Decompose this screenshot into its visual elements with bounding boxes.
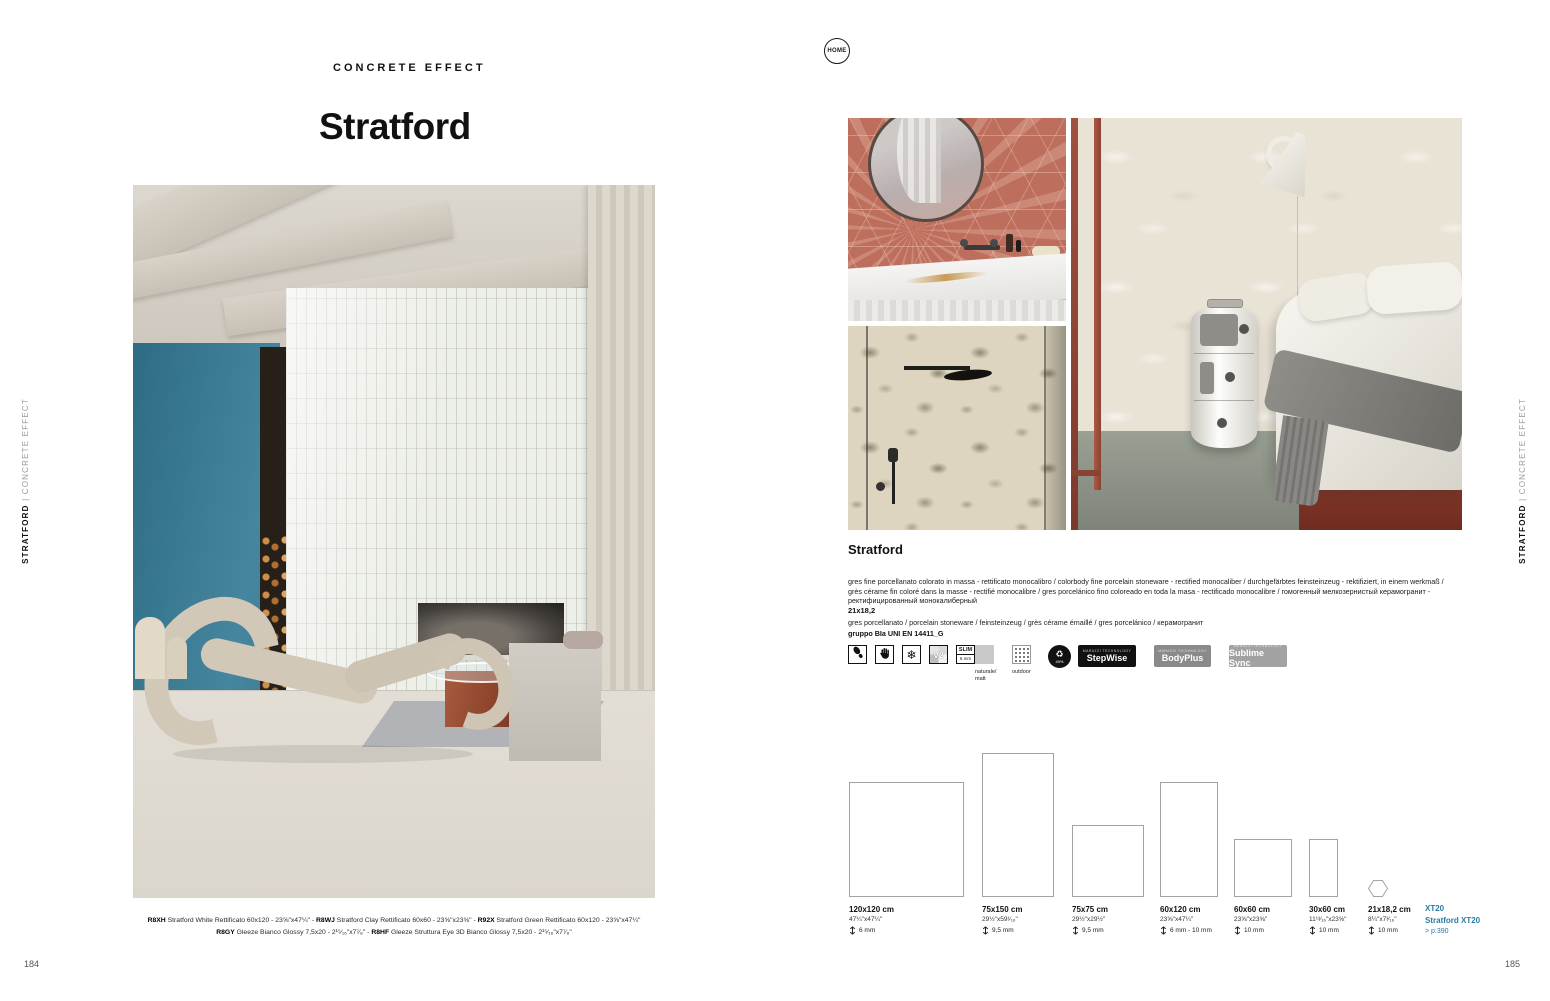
living-room-photo [133, 185, 655, 898]
size-shape-rect [1160, 782, 1218, 897]
home-button-label: HOME [827, 48, 846, 54]
thickness-icon [1072, 926, 1079, 935]
sidebar-effect: CONCRETE EFFECT [21, 398, 30, 494]
badge-subtitle: MARAZZI TECHNOLOGY [1234, 644, 1283, 648]
size-label: 75x150 cm [982, 905, 1022, 914]
product-size-note: 21x18,2 [848, 606, 875, 615]
size-shape-area [1368, 750, 1498, 897]
footprint-icon [852, 646, 864, 664]
product-code: R8HF [371, 929, 389, 936]
page-title: Stratford [319, 106, 471, 148]
bathroom-photo [848, 118, 1066, 321]
nightstand-handle [1207, 299, 1243, 308]
v2-label: V2 [933, 650, 943, 660]
size-shape-rect [1309, 839, 1338, 897]
slim-label: SLIM [957, 647, 974, 655]
left-sidebar-label: STRATFORD | CONCRETE EFFECT [21, 398, 30, 564]
stepwise-label: StepWise [1087, 653, 1127, 663]
sublime-sync-label: Sublime Sync [1229, 648, 1287, 668]
red-frame [1071, 118, 1078, 530]
glass-edge [866, 326, 868, 530]
bottle [1006, 234, 1013, 252]
cushion [563, 631, 603, 649]
sidebar-collection: STRATFORD [1518, 504, 1527, 564]
size-inches: 11¹³⁄₁₆"x23⅝" [1309, 916, 1347, 923]
shower-head [944, 368, 993, 382]
bodyplus-label: BodyPlus [1162, 653, 1204, 663]
product-code: R8GY [216, 929, 235, 936]
thickness-icon [1368, 926, 1375, 935]
faucet-knob [960, 239, 968, 247]
size-shape-rect [849, 782, 964, 897]
product-code: R92X [478, 917, 495, 924]
size-column: 120x120 cm47¼"x47¼"6 mm [849, 750, 979, 950]
nightstand-knob [1225, 372, 1235, 382]
size-shape-rect [1072, 825, 1144, 897]
size-label: 120x120 cm [849, 905, 894, 914]
sidebar-collection: STRATFORD [21, 504, 30, 564]
product-code: R8WJ [316, 917, 335, 924]
size-label: 30x60 cm [1309, 905, 1345, 914]
mirror-reflection [897, 118, 941, 203]
size-inches: 8¼"x7³⁄₁₆" [1368, 916, 1397, 923]
size-thickness: 9,5 mm [1072, 926, 1104, 935]
bodyplus-badge: MARAZZI TECHNOLOGY BodyPlus [1154, 645, 1211, 667]
size-inches: 29½"x29½" [1072, 916, 1105, 923]
thickness-icon [1160, 926, 1167, 935]
sublime-sync-badge: MARAZZI TECHNOLOGY Sublime Sync [1229, 645, 1287, 667]
shade-variation-pictogram: V2 [929, 645, 948, 664]
nightstand-knob [1239, 324, 1249, 334]
basin-front [848, 300, 1066, 321]
sidebar-divider: | [1518, 494, 1527, 504]
nightstand-door [1200, 362, 1214, 394]
slim-pictogram: SLIM 6 mm [956, 645, 975, 664]
floor-use-pictogram [848, 645, 867, 664]
matt-finish-swatch [975, 645, 994, 664]
thickness-icon [982, 926, 989, 935]
hand-shower-rod [892, 456, 895, 504]
collection-eyebrow: CONCRETE EFFECT [333, 62, 486, 74]
product-description: gres fine porcellanato colorato in massa… [848, 577, 1446, 606]
thickness-icon [1234, 926, 1241, 935]
product-code: R8XH [148, 917, 166, 924]
page-number-right: 185 [1505, 959, 1520, 969]
pillow [1365, 261, 1462, 316]
cylinder-nightstand [1191, 306, 1257, 448]
pictogram-row: ❄ V2 SLIM 6 mm naturale/ matt outdoor ♻ … [848, 645, 1488, 693]
bedroom-photo [1071, 118, 1462, 530]
faucet-knob [990, 239, 998, 247]
caption-line: R8GY Gleeze Bianco Glossy 7,5x20 - 2¹⁵⁄₁… [133, 927, 655, 939]
caption-line: R8XH Stratford White Rettificato 60x120 … [133, 915, 655, 927]
recycle-symbol: ♻ [1055, 650, 1063, 659]
round-mirror [868, 118, 984, 222]
decor-sculpture [135, 617, 165, 679]
outdoor-finish-label: outdoor [1012, 669, 1031, 676]
hand-shower [888, 448, 898, 462]
snowflake-icon: ❄ [906, 649, 916, 661]
nightstand-door [1200, 314, 1238, 346]
product-group: gruppo BIa UNI EN 14411_G [848, 629, 943, 638]
size-inches: 47¼"x47¼" [849, 916, 882, 923]
badge-subtitle: MARAZZI TECHNOLOGY [1158, 649, 1207, 653]
size-label: 60x60 cm [1234, 905, 1270, 914]
shower-photo [848, 326, 1066, 530]
slim-thickness: 6 mm [960, 655, 971, 663]
mixer-knob [876, 482, 885, 491]
decor-sculpture [167, 637, 187, 679]
size-inches: 23⅝"x47¼" [1160, 916, 1193, 923]
size-thickness: 10 mm [1234, 926, 1264, 935]
nightstand-knob [1217, 418, 1227, 428]
sizes-strip: XT20 Stratford XT20 > p.390 120x120 cm47… [849, 750, 1509, 955]
page-number-left: 184 [24, 959, 39, 969]
frost-resistant-pictogram: ❄ [902, 645, 921, 664]
stepwise-badge: MARAZZI TECHNOLOGY StepWise [1078, 645, 1136, 667]
size-shape-rect [982, 753, 1054, 897]
wall-use-pictogram [875, 645, 894, 664]
sidebar-effect: CONCRETE EFFECT [1518, 398, 1527, 494]
product-name: Stratford [848, 542, 903, 557]
size-label: 75x75 cm [1072, 905, 1108, 914]
right-sidebar-label: STRATFORD | CONCRETE EFFECT [1518, 398, 1527, 564]
shadow-band [1046, 326, 1066, 530]
home-button[interactable]: HOME [824, 38, 850, 64]
size-thickness: 10 mm [1368, 926, 1398, 935]
photo-caption: R8XH Stratford White Rettificato 60x120 … [133, 915, 655, 938]
size-label: 60x120 cm [1160, 905, 1200, 914]
hand-icon [879, 646, 891, 664]
recycled-content-icon: ♻ 40% [1048, 645, 1071, 668]
shower-arm [904, 366, 970, 370]
size-shape-rect [1234, 839, 1292, 897]
size-thickness: 10 mm [1309, 926, 1339, 935]
size-thickness: 9,5 mm [982, 926, 1014, 935]
floor-shadow [173, 745, 473, 763]
concrete-bench [509, 643, 601, 761]
bottle [1016, 240, 1021, 252]
size-inches: 29½"x59¹⁄₁₆" [982, 916, 1018, 923]
red-frame-pole [1094, 118, 1101, 490]
red-frame-base [1071, 470, 1101, 476]
size-inches: 23⅝"x23⅝" [1234, 916, 1267, 923]
sidebar-divider: | [21, 494, 30, 504]
product-material: gres porcellanato / porcelain stoneware … [848, 618, 1203, 627]
size-column: 21x18,2 cm8¼"x7³⁄₁₆"10 mm [1368, 750, 1498, 950]
recycle-value: 40% [1055, 659, 1063, 664]
matt-finish-label: naturale/ matt [975, 669, 996, 682]
size-shape-area [849, 750, 979, 897]
size-label: 21x18,2 cm [1368, 905, 1411, 914]
thickness-icon [1309, 926, 1316, 935]
size-shape-hexagon [1368, 880, 1388, 897]
outdoor-finish-swatch [1012, 645, 1031, 664]
size-thickness: 6 mm - 10 mm [1160, 926, 1212, 935]
badge-subtitle: MARAZZI TECHNOLOGY [1083, 649, 1132, 653]
size-thickness: 6 mm [849, 926, 875, 935]
thickness-icon [849, 926, 856, 935]
